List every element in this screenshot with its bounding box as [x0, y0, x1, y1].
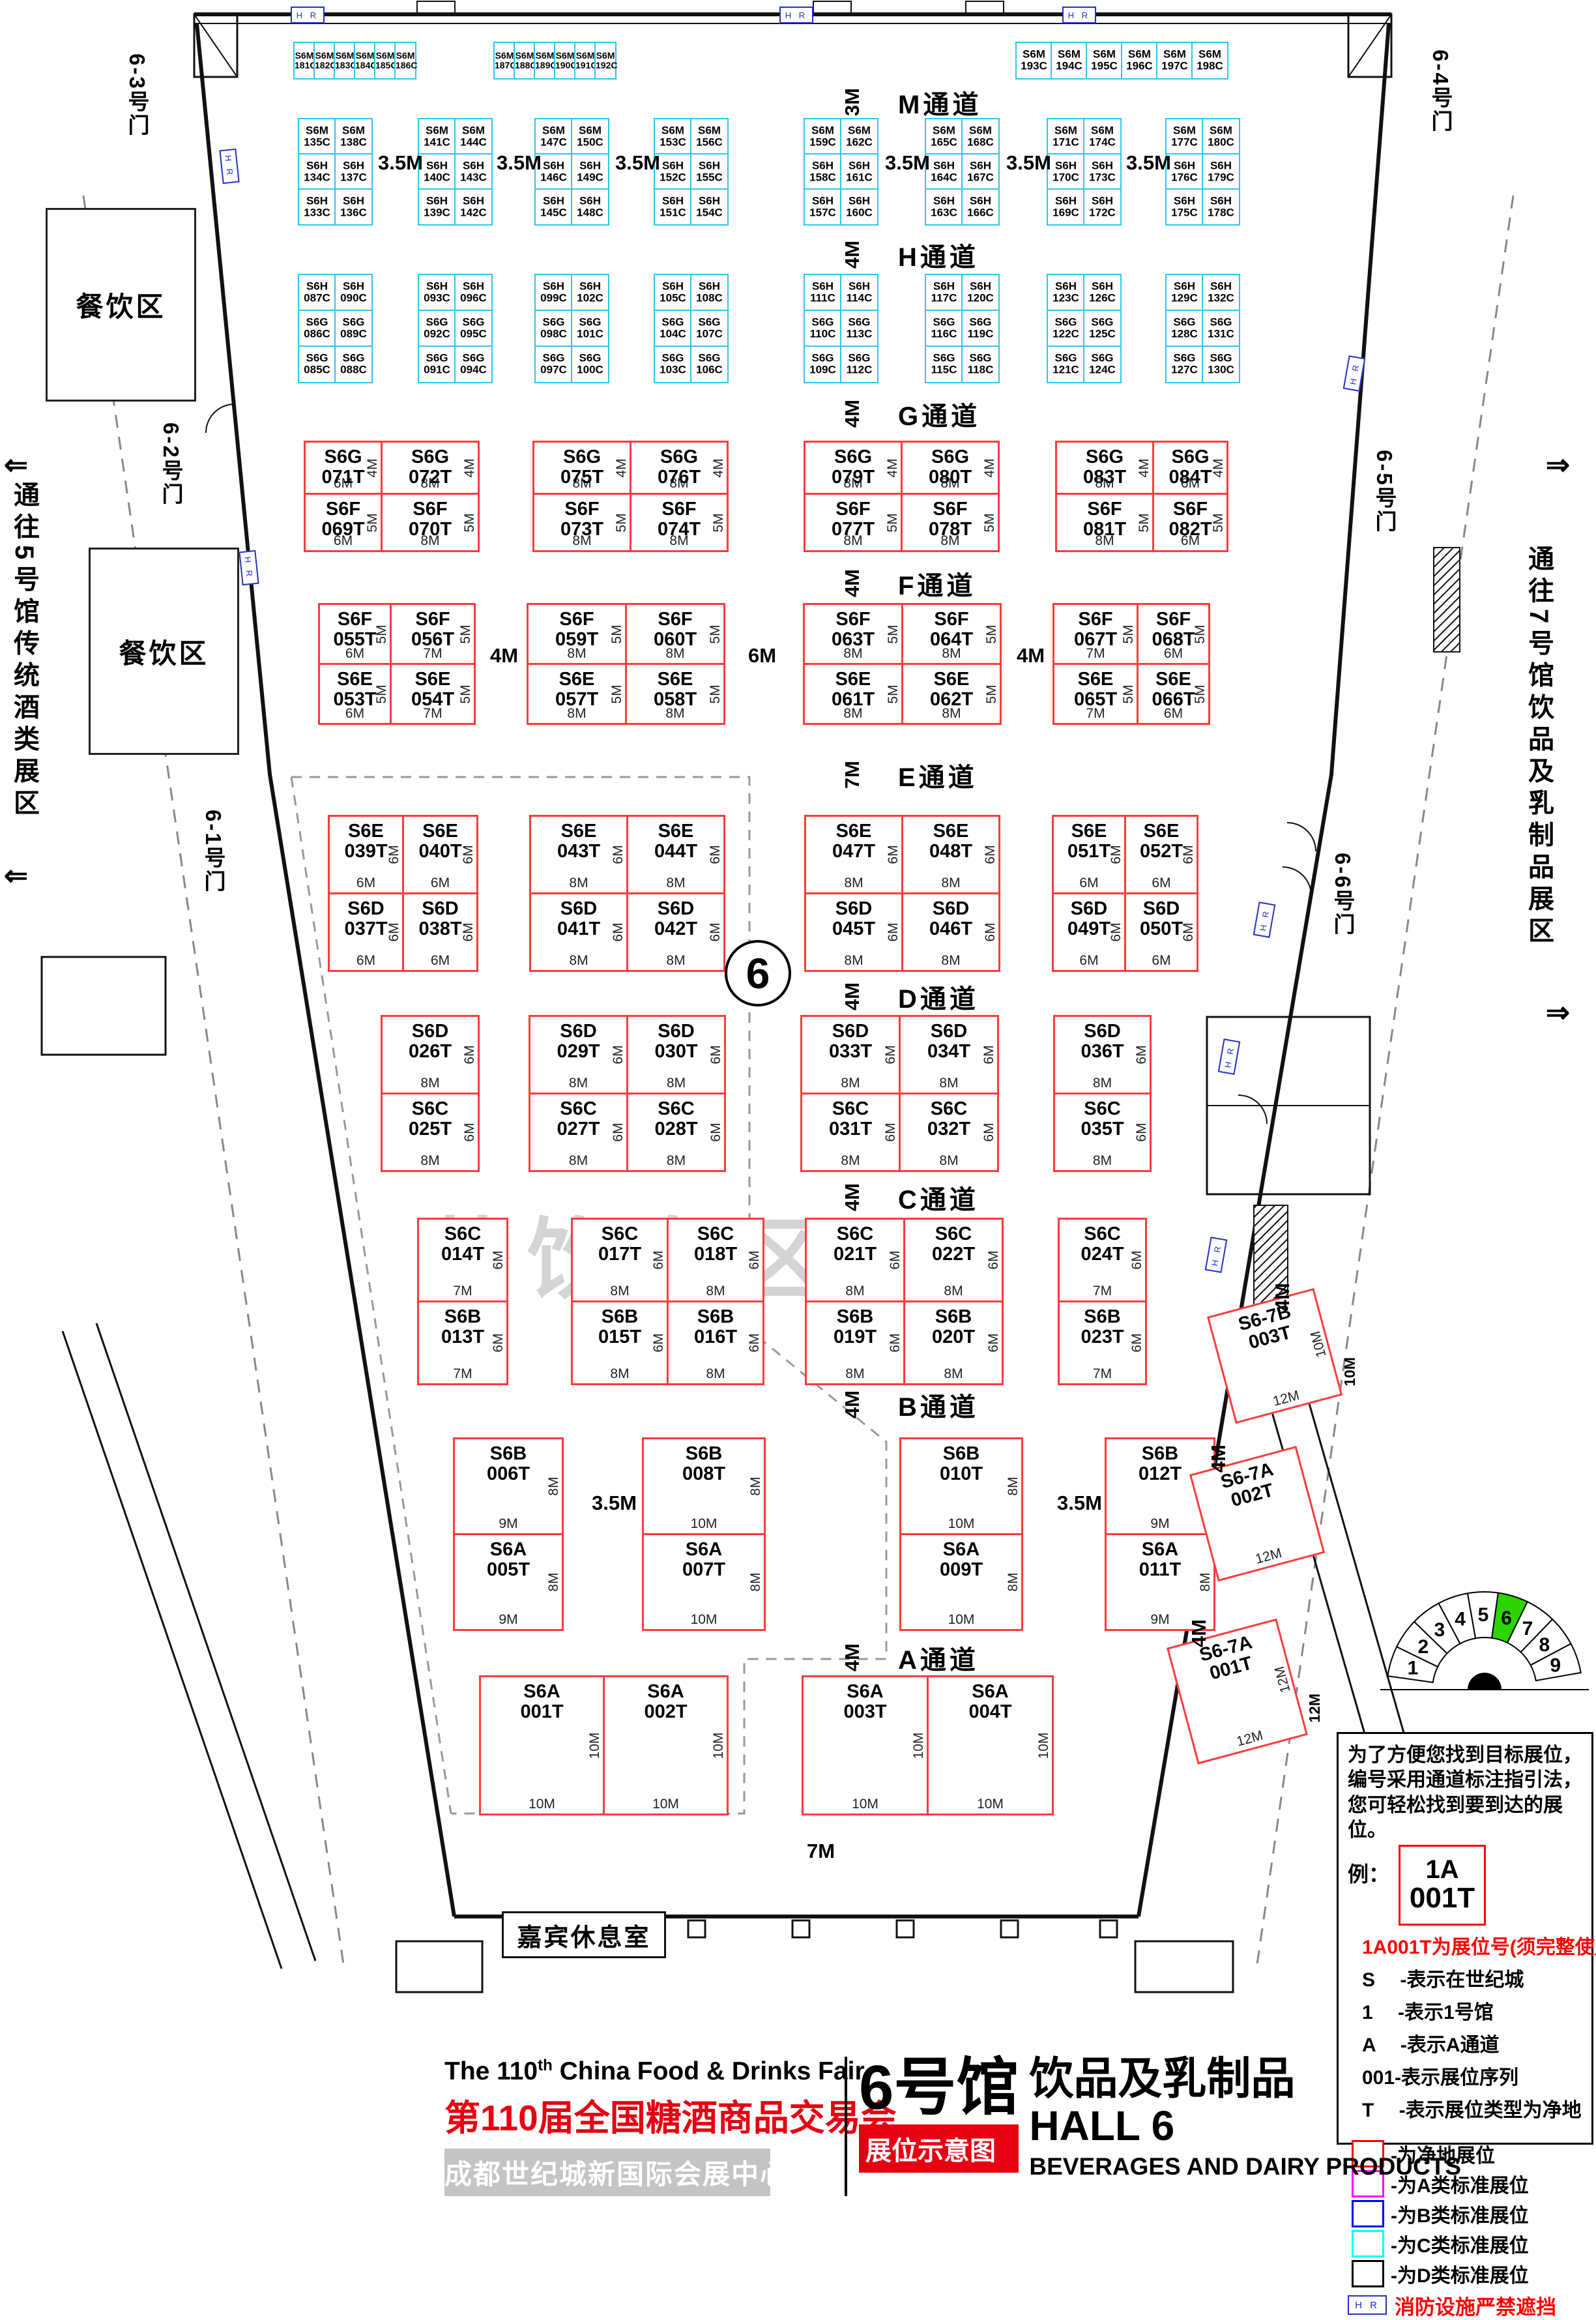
booth-S6G-083T: S6G083T8M4M — [1055, 441, 1154, 495]
booth-S6H-167C: S6H167C — [961, 153, 1000, 190]
booth-height-dim: 6M — [708, 1123, 724, 1141]
booth-height-dim: 4M — [365, 458, 381, 477]
booth-S6G-118C: S6G118C — [961, 345, 1000, 383]
booth-width-dim: 8M — [383, 1153, 478, 1169]
booth-height-dim: 6M — [986, 1250, 1002, 1269]
legend-example-booth: 1A 001T — [1399, 1845, 1486, 1926]
booth-height-dim: 6M — [386, 845, 402, 864]
booth-S6M-192C: S6M192C — [594, 42, 617, 80]
booth-S6E-065T: S6E065T7M5M — [1052, 663, 1139, 725]
booth-label: S6H160C — [841, 195, 877, 219]
booth-height-dim: 6M — [1109, 845, 1124, 864]
booth-S6F-073T: S6F073T8M5M — [532, 493, 631, 552]
booth-width-dim: 7M — [419, 1284, 506, 1299]
booth-S6C-018T: S6C018T8M6M — [667, 1218, 764, 1302]
booth-row: S6M141CS6M144C — [418, 118, 493, 155]
booth-height-dim: 4M — [614, 458, 630, 477]
booth-S6H-114C: S6H114C — [840, 274, 878, 312]
booth-row: S6H145CS6H148C — [534, 188, 609, 226]
arrow-right-icon: ⇒ — [1546, 448, 1570, 482]
booth-label: S6G130C — [1203, 353, 1239, 377]
booth-width-dim: 10M — [804, 1797, 927, 1812]
booth-S6E-057T: S6E057T8M5M — [527, 663, 627, 725]
booth-label: S6H120C — [963, 281, 998, 305]
booth-label: S6M138C — [336, 125, 371, 149]
booth-label: S6H166C — [963, 195, 998, 219]
aisle-label-D: 4MD通道 — [841, 978, 979, 1016]
booth-width-dim: 7M — [419, 1366, 506, 1382]
booth-S6D-036T: S6D036T8M6M — [1053, 1015, 1152, 1094]
booth-label: S6G131C — [1203, 317, 1239, 341]
booth-label: S6M162C — [841, 125, 877, 149]
booth-width-dim: 8M — [530, 1153, 626, 1169]
aisle-name: E通道 — [898, 756, 978, 794]
booth-row: S6G116CS6G119C — [925, 310, 1000, 347]
legend-fire-row: H R 消防设施严禁遮挡 — [1348, 2291, 1585, 2320]
fan-hall-number: 7 — [1522, 1618, 1533, 1639]
booth-S6E-058T: S6E058T8M5M — [625, 663, 725, 725]
booth-label: S6G109C — [805, 353, 841, 377]
booth-S6H-166C: S6H166C — [961, 188, 1000, 226]
booth-S6H-134C: S6H134C — [298, 153, 336, 190]
aisle-name: F通道 — [898, 565, 976, 602]
booth-width-dim: 9M — [455, 1516, 562, 1532]
booth-group: S6B006T9M8MS6A005T9M8M — [453, 1437, 564, 1631]
hall-category-en: BEVERAGES AND DAIRY PRODUCTS — [1029, 2153, 1461, 2181]
booth-S6H-105C: S6H105C — [654, 274, 692, 312]
booth-height-dim: 5M — [1193, 624, 1208, 643]
booth-S6M-153C: S6M153C — [654, 118, 692, 155]
booth-S6G-072T: S6G072T8M4M — [381, 441, 480, 495]
booth-row: S6D041T8M6MS6D042T8M6M — [529, 892, 725, 972]
booth-label: S6M189C — [535, 51, 555, 70]
dimension-label: 3.5M — [615, 151, 660, 175]
booth-width-dim: 6M — [1154, 533, 1226, 549]
hall-category-cn: 饮品及乳制品 — [1029, 2057, 1461, 2101]
booth-S6H-090C: S6H090C — [334, 274, 373, 312]
booth-width-dim: 8M — [903, 706, 1000, 722]
booth-width-dim: 8M — [806, 875, 901, 891]
aisle-label-B: 4MB通道 — [841, 1386, 979, 1424]
booth-group: S6M135CS6M138CS6H134CS6H137CS6H133CS6H13… — [298, 118, 373, 226]
booth-S6M-183C: S6M183C — [334, 42, 356, 80]
booth-height-dim: 8M — [748, 1572, 764, 1591]
booth-height-dim: 6M — [883, 1045, 899, 1064]
booth-width-dim: 8M — [807, 1284, 903, 1299]
booth-label: S6G094C — [456, 353, 491, 377]
aisle-width-dim: 4M — [841, 569, 864, 597]
booth-row: S6G071T6M4MS6G072T8M4M — [304, 441, 480, 495]
booth-width-dim: 8M — [631, 476, 727, 492]
booth-group: S6D026T8M6MS6C025T8M6M — [381, 1015, 480, 1172]
booth-row: S6F069T6M5MS6F070T8M5M — [304, 493, 480, 552]
booth-S6G-119C: S6G119C — [961, 310, 1000, 347]
booth-row: S6G115CS6G118C — [925, 345, 1000, 383]
booth-label: S6G113C — [841, 317, 877, 341]
booth-height-dim: 5M — [1193, 684, 1208, 703]
booth-row: S6E047T8M6MS6E048T8M6M — [804, 815, 1000, 894]
booth-S6A-004T: S6A004T10M10M — [927, 1675, 1054, 1815]
booth-S6G-080T: S6G080T8M4M — [901, 441, 1000, 495]
booth-S6C-031T: S6C031T8M6M — [800, 1093, 901, 1172]
booth-label: S6A007T — [644, 1540, 764, 1581]
booth-width-dim: 8M — [534, 533, 630, 549]
booth-width-dim: 6M — [404, 875, 476, 891]
booth-S6B-010T: S6B010T10M8M — [899, 1437, 1023, 1535]
dimension-label: 6M — [748, 644, 776, 668]
booth-label: S6G106C — [691, 353, 727, 377]
booth-label: S6M196C — [1122, 49, 1157, 73]
booth-S6B-008T: S6B008T10M8M — [642, 1437, 766, 1535]
booth-height-dim: 5M — [982, 513, 998, 532]
booth-S6H-133C: S6H133C — [298, 188, 336, 226]
booth-S6E-047T: S6E047T8M6M — [804, 815, 903, 894]
booth-S6H-111C: S6H111C — [804, 274, 842, 312]
booth-row: S6B008T10M8M — [642, 1437, 766, 1535]
booth-group: S6D033T8M6MS6D034T8M6MS6C031T8M6MS6C032T… — [800, 1015, 999, 1172]
booth-height-dim: 5M — [984, 624, 1000, 643]
booth-group: S6H111CS6H114CS6G110CS6G113CS6G109CS6G11… — [804, 274, 878, 383]
booth-label: S6G095C — [456, 317, 491, 341]
booth-S6H-140C: S6H140C — [418, 153, 456, 190]
booth-row: S6D036T8M6M — [1053, 1015, 1152, 1094]
booth-group: S6M181CS6M182CS6M183CS6M184CS6M185CS6M18… — [293, 42, 416, 80]
booth-width-dim: 9M — [455, 1612, 562, 1628]
booth-height-dim: 6M — [651, 1250, 667, 1269]
booth-width-dim: 6M — [330, 953, 402, 969]
booth-S6M-193C: S6M193C — [1015, 42, 1052, 80]
booth-width-dim: 8M — [631, 533, 727, 549]
booth-height-dim: 8M — [546, 1572, 562, 1591]
booth-label: S6H155C — [691, 160, 727, 184]
legend-example-line2: 001T — [1410, 1883, 1475, 1913]
booth-label: S6B008T — [644, 1444, 764, 1485]
booth-group: S6D036T8M6MS6C035T8M6M — [1053, 1015, 1152, 1172]
booth-row: S6C027T8M6MS6C028T8M6M — [529, 1093, 726, 1172]
booth-height-dim: 6M — [611, 1045, 626, 1064]
booth-group: S6M177CS6M180CS6H176CS6H179CS6H175CS6H17… — [1165, 118, 1240, 226]
booth-row: S6M159CS6M162C — [804, 118, 878, 155]
booth-width-dim: 7M — [1060, 1366, 1145, 1382]
booth-S6C-017T: S6C017T8M6M — [571, 1218, 669, 1302]
booth-width-dim: 8M — [627, 706, 723, 722]
booth-height-dim: 6M — [983, 845, 998, 864]
booth-row: S6E053T6M5MS6E054T7M5M — [318, 663, 476, 725]
booth-width-dim: 8M — [903, 646, 1000, 662]
booth-S6H-132C: S6H132C — [1202, 274, 1240, 312]
dimension-label: 12M — [1306, 1694, 1324, 1723]
booth-width-dim: 6M — [1139, 706, 1208, 722]
booth-row: S6G098CS6G101C — [534, 310, 609, 347]
booth-label: S6G088C — [336, 353, 371, 377]
booth-row: S6C024T7M6M — [1058, 1218, 1147, 1302]
booth-height-dim: 8M — [1006, 1572, 1021, 1591]
hall-number-en: HALL 6 — [1029, 2105, 1461, 2147]
booth-S6M-165C: S6M165C — [925, 118, 963, 155]
legend-example-line1: 1A — [1425, 1856, 1458, 1883]
aisle-name: H通道 — [898, 236, 979, 274]
booth-width-dim: 8M — [807, 1366, 903, 1382]
booth-S6F-077T: S6F077T8M5M — [804, 493, 903, 552]
booth-row: S6H133CS6H136C — [298, 188, 373, 226]
booth-S6G-124C: S6G124C — [1083, 345, 1122, 383]
booth-label: S6G128C — [1167, 317, 1202, 341]
booth-S6D-041T: S6D041T8M6M — [529, 892, 628, 972]
booth-row: S6M181CS6M182CS6M183CS6M184CS6M185CS6M18… — [293, 42, 416, 80]
booth-S6E-054T: S6E054T7M5M — [390, 663, 476, 725]
booth-label: S6M198C — [1193, 49, 1227, 73]
booth-label: S6M184C — [355, 51, 375, 70]
booth-width-dim: 8M — [903, 953, 998, 969]
booth-S6E-040T: S6E040T6M6M — [402, 815, 478, 894]
fan-hall-number: 8 — [1539, 1634, 1550, 1656]
booth-width-dim: 6M — [330, 875, 402, 891]
aisle-name: M通道 — [898, 83, 981, 121]
booth-S6M-194C: S6M194C — [1051, 42, 1088, 80]
legend-class-swatch — [1352, 2200, 1384, 2227]
booth-S6A-011T: S6A011T9M8M — [1105, 1533, 1215, 1631]
booth-label: S6H133C — [299, 195, 335, 219]
booth-S6G-089C: S6G089C — [334, 310, 373, 347]
booth-S6E-043T: S6E043T8M6M — [529, 815, 628, 894]
booth-S6M-191C: S6M191C — [574, 42, 596, 80]
booth-S6B-015T: S6B015T8M6M — [571, 1300, 669, 1385]
booth-height-dim: 6M — [611, 1123, 626, 1141]
booth-row: S6C031T8M6MS6C032T8M6M — [800, 1093, 999, 1172]
booth-S6H-178C: S6H178C — [1202, 188, 1240, 226]
booth-height-dim: 5M — [1121, 624, 1137, 643]
booth-width-dim: 6M — [1126, 953, 1197, 969]
booth-height-dim: 6M — [883, 1123, 899, 1141]
booth-width-dim: 6M — [1126, 875, 1197, 891]
booth-label: S6G116C — [926, 317, 962, 341]
booth-label: S6M194C — [1052, 49, 1086, 73]
booth-label: S6H117C — [926, 281, 962, 305]
booth-S6G-094C: S6G094C — [454, 345, 493, 383]
booth-height-dim: 10M — [711, 1732, 727, 1759]
booth-width-dim: 8M — [903, 875, 998, 891]
plan-tag: 展位示意图 — [859, 2124, 1019, 2173]
booth-S6H-151C: S6H151C — [654, 188, 692, 226]
booth-label: S6G112C — [841, 353, 877, 377]
booth-S6G-122C: S6G122C — [1047, 310, 1085, 347]
fire-hydrant-icon: H R — [779, 7, 813, 23]
title-block: The 110th China Food & Drinks Fair 第110届… — [444, 2057, 1461, 2196]
fan-hall-number: 9 — [1550, 1655, 1561, 1677]
corridor-to-hall7: 通往7号馆饮品及乳制品展区 — [1520, 545, 1558, 948]
booth-S6H-093C: S6H093C — [418, 274, 456, 312]
booth-S6G-121C: S6G121C — [1047, 345, 1085, 383]
booth-group: S6H087CS6H090CS6G086CS6G089CS6G085CS6G08… — [298, 274, 373, 383]
booth-height-dim: 6M — [747, 1333, 762, 1352]
booth-label: S6H173C — [1084, 160, 1120, 184]
dimension-label: 3.5M — [1006, 151, 1051, 175]
booth-label: S6M159C — [805, 125, 841, 149]
booth-S6G-097C: S6G097C — [534, 345, 573, 383]
booth-height-dim: 5M — [458, 684, 474, 703]
aisle-label-H: 4MH通道 — [841, 236, 979, 274]
booth-label: S6M190C — [555, 51, 575, 70]
booth-S6F-070T: S6F070T8M5M — [381, 493, 480, 552]
booth-S6M-141C: S6M141C — [418, 118, 456, 155]
booth-height-dim: 6M — [491, 1333, 506, 1352]
booth-width-dim: 8M — [628, 875, 723, 891]
booth-S6G-110C: S6G110C — [804, 310, 842, 347]
booth-row: S6A001T10M10MS6A002T10M10M — [479, 1675, 729, 1815]
booth-S6C-014T: S6C014T7M6M — [417, 1218, 508, 1302]
booth-width-dim: 7M — [1060, 1284, 1145, 1299]
booth-row: S6B023T7M6M — [1058, 1300, 1147, 1385]
booth-S6E-039T: S6E039T6M6M — [328, 815, 404, 894]
booth-S6M-185C: S6M185C — [374, 42, 396, 80]
door-label-6-3: 6-3号门 — [121, 53, 152, 138]
aisle-label-A: 4MA通道 — [841, 1639, 979, 1677]
booth-height-dim: 5M — [886, 684, 901, 703]
booth-height-dim: 4M — [462, 458, 478, 477]
dimension-label: 3.5M — [497, 151, 542, 175]
booth-width-dim: 8M — [628, 1153, 724, 1169]
booth-S6F-055T: S6F055T6M5M — [318, 603, 392, 665]
booth-group: S6H105CS6H108CS6G104CS6G107CS6G103CS6G10… — [654, 274, 729, 383]
booth-row: S6A005T9M8M — [453, 1533, 564, 1631]
booth-S6H-087C: S6H087C — [298, 274, 336, 312]
booth-S6F-064T: S6F064T8M5M — [901, 603, 1002, 665]
booth-row: S6G122CS6G125C — [1047, 310, 1122, 347]
booth-row: S6H146CS6H149C — [534, 153, 609, 190]
booth-label: S6H164C — [926, 160, 962, 184]
booth-S6G-125C: S6G125C — [1083, 310, 1122, 347]
booth-label: S6M187C — [495, 51, 514, 70]
booth-row: S6H169CS6H172C — [1047, 188, 1122, 226]
legend-code-line: S -表示在世纪城 — [1362, 1963, 1585, 1992]
legend-example-label: 例： — [1348, 1858, 1389, 1888]
booth-group: S6B010T10M8MS6A009T10M8M — [899, 1437, 1023, 1631]
aisle-width-dim: 4M — [841, 1390, 864, 1418]
booth-height-dim: 6M — [491, 1250, 506, 1269]
booth-label: S6G110C — [805, 317, 841, 341]
booth-label: S6H096C — [456, 281, 491, 305]
booth-width-dim: 8M — [805, 706, 901, 722]
booth-S6F-078T: S6F078T8M5M — [901, 493, 1000, 552]
booth-label: S6M183C — [335, 51, 355, 70]
booth-label: S6H179C — [1203, 160, 1239, 184]
fan-hall-number: 6 — [1501, 1608, 1512, 1629]
booth-width-dim: 6M — [1054, 875, 1124, 891]
booth-S6F-081T: S6F081T8M5M — [1055, 493, 1154, 552]
booth-height-dim: 6M — [461, 845, 476, 864]
legend-class-row: -为C类标准展位 — [1352, 2229, 1585, 2258]
booth-width-dim: 8M — [383, 533, 478, 549]
dimension-label: 4M — [1207, 1445, 1230, 1473]
booth-S6F-082T: S6F082T6M5M — [1152, 493, 1228, 552]
booth-height-dim: 8M — [748, 1476, 764, 1495]
booth-label: S6H148C — [572, 195, 608, 219]
booth-S6H-145C: S6H145C — [534, 188, 573, 226]
booth-label: S6M181C — [295, 51, 314, 70]
booth-label: S6H102C — [572, 281, 608, 305]
booth-S6H-120C: S6H120C — [961, 274, 1000, 312]
booth-S6G-086C: S6G086C — [298, 310, 336, 347]
booth-row: S6F081T8M5MS6F082T6M5M — [1055, 493, 1228, 552]
booth-group: S6M159CS6M162CS6H158CS6H161CS6H157CS6H16… — [804, 118, 878, 226]
booth-S6D-034T: S6D034T8M6M — [899, 1015, 999, 1094]
booth-row: S6H151CS6H154C — [654, 188, 729, 226]
booth-label: S6H170C — [1048, 160, 1084, 184]
booth-height-dim: 6M — [462, 1123, 478, 1141]
hall-number-circle: 6 — [725, 940, 791, 1006]
booth-label: S6H176C — [1167, 160, 1202, 184]
booth-S6M-196C: S6M196C — [1121, 42, 1158, 80]
booth-S6F-074T: S6F074T8M5M — [630, 493, 729, 552]
booth-S6G-116C: S6G116C — [925, 310, 963, 347]
booth-row: S6A003T10M10MS6A004T10M10M — [802, 1675, 1054, 1815]
booth-S6C-027T: S6C027T8M6M — [529, 1093, 628, 1172]
booth-label: S6M135C — [299, 125, 335, 149]
booth-width-dim: 8M — [628, 953, 723, 969]
booth-height-dim: 5M — [885, 513, 901, 532]
booth-label: S6H142C — [456, 195, 491, 219]
booth-width-dim: 7M — [392, 706, 474, 722]
booth-width-dim: 8M — [802, 1153, 899, 1169]
booth-width-dim: 8M — [529, 706, 625, 722]
booth-group: S6A001T10M10MS6A002T10M10M — [479, 1675, 729, 1815]
booth-height-dim: 5M — [984, 684, 1000, 703]
booth-S6F-067T: S6F067T7M5M — [1052, 603, 1139, 665]
booth-label: S6H175C — [1167, 195, 1202, 219]
dining-area-label: 餐饮区 — [119, 632, 209, 671]
fan-hall-number: 2 — [1417, 1636, 1429, 1658]
booth-S6H-123C: S6H123C — [1047, 274, 1085, 312]
booth-row: S6F073T8M5MS6F074T8M5M — [532, 493, 729, 552]
booth-label: S6H132C — [1203, 281, 1239, 305]
booth-width-dim: 10M — [901, 1612, 1021, 1628]
booth-width-dim: 8M — [905, 1366, 1002, 1382]
booth-label: S6G124C — [1084, 353, 1120, 377]
booth-height-dim: 5M — [1211, 513, 1226, 532]
booth-row: S6F059T8M5MS6F060T8M5M — [527, 603, 725, 665]
booth-S6G-095C: S6G095C — [454, 310, 493, 347]
booth-S6E-061T: S6E061T8M5M — [803, 663, 903, 725]
booth-row: S6D049T6M6MS6D050T6M6M — [1052, 892, 1198, 972]
booth-S6M-198C: S6M198C — [1191, 42, 1228, 80]
booth-S6H-096C: S6H096C — [454, 274, 493, 312]
aisle-name: A通道 — [898, 1639, 979, 1677]
booth-row: S6H139CS6H142C — [418, 188, 493, 226]
booth-S6B-006T: S6B006T9M8M — [453, 1437, 564, 1535]
booth-row: S6G109CS6G112C — [804, 345, 878, 383]
booth-width-dim: 6M — [320, 706, 390, 722]
booth-group: S6H123CS6H126CS6G122CS6G125CS6G121CS6G12… — [1047, 274, 1122, 383]
aisle-label-G: 4MG通道 — [841, 395, 980, 433]
booth-row: S6M135CS6M138C — [298, 118, 373, 155]
booth-row: S6G079T8M4MS6G080T8M4M — [804, 441, 1000, 495]
booth-label: S6H123C — [1048, 281, 1084, 305]
booth-S6D-046T: S6D046T8M6M — [901, 892, 1000, 972]
booth-label: S6G086C — [299, 317, 335, 341]
legend-fire-text: 消防设施严禁遮挡 — [1395, 2291, 1556, 2320]
booth-width-dim: 8M — [905, 1284, 1002, 1299]
booth-label: S6H149C — [572, 160, 608, 184]
booth-S6M-187C: S6M187C — [493, 42, 515, 80]
booth-label: S6M197C — [1157, 49, 1192, 73]
booth-S6M-174C: S6M174C — [1083, 118, 1122, 155]
booth-label: S6H167C — [963, 160, 998, 184]
booth-row: S6G083T8M4MS6G084T6M4M — [1055, 441, 1228, 495]
booth-width-dim: 8M — [573, 1284, 667, 1299]
fire-hydrant-icon: H R — [1348, 2295, 1387, 2315]
booth-S6M-195C: S6M195C — [1086, 42, 1123, 80]
booth-group: S6G071T6M4MS6G072T8M4MS6F069T6M5MS6F070T… — [304, 441, 480, 552]
